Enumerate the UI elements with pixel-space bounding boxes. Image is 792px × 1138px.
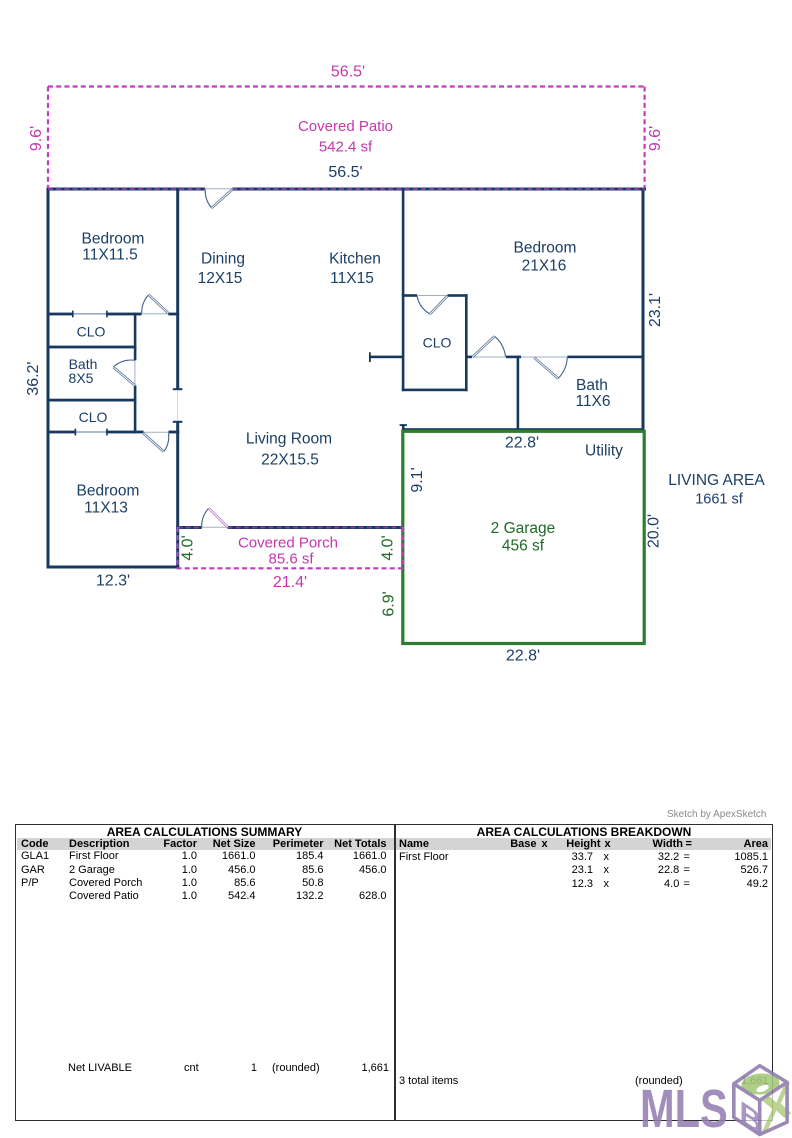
- svg-text:36.2': 36.2': [25, 361, 42, 395]
- svg-text:Bedroom: Bedroom: [77, 483, 140, 500]
- svg-text:9.6': 9.6': [647, 126, 664, 151]
- svg-text:21X16: 21X16: [522, 258, 567, 275]
- svg-text:Bedroom: Bedroom: [514, 240, 577, 257]
- svg-text:Covered Patio: Covered Patio: [298, 118, 393, 135]
- svg-text:85.6 sf: 85.6 sf: [268, 550, 314, 567]
- svg-text:456 sf: 456 sf: [502, 538, 545, 555]
- svg-text:Dining: Dining: [201, 251, 245, 268]
- svg-text:4.0': 4.0': [379, 535, 396, 560]
- svg-text:22X15.5: 22X15.5: [261, 452, 319, 469]
- svg-text:Utility: Utility: [585, 443, 623, 460]
- svg-text:CLO: CLO: [79, 409, 108, 425]
- svg-text:9.1': 9.1': [409, 467, 426, 492]
- svg-text:6.9': 6.9': [381, 591, 398, 616]
- svg-text:56.5': 56.5': [328, 164, 362, 181]
- svg-text:Living Room: Living Room: [246, 431, 332, 448]
- svg-text:9.6': 9.6': [28, 126, 45, 151]
- svg-text:22.8': 22.8': [506, 647, 540, 664]
- svg-text:11X11.5: 11X11.5: [82, 247, 137, 264]
- svg-text:1661 sf: 1661 sf: [695, 492, 744, 508]
- svg-text:12.3': 12.3': [96, 572, 130, 589]
- svg-text:LIVING AREA: LIVING AREA: [668, 472, 765, 489]
- svg-text:542.4 sf: 542.4 sf: [319, 138, 373, 155]
- svg-text:4.0': 4.0': [179, 535, 196, 560]
- svg-text:11X6: 11X6: [575, 393, 610, 410]
- svg-text:22.8': 22.8': [505, 434, 539, 451]
- svg-text:23.1': 23.1': [647, 293, 664, 327]
- svg-text:11X15: 11X15: [330, 270, 374, 287]
- svg-text:56.5': 56.5': [331, 63, 365, 80]
- svg-text:11X13: 11X13: [84, 500, 128, 517]
- svg-text:CLO: CLO: [77, 324, 106, 340]
- svg-text:8X5: 8X5: [69, 370, 94, 386]
- svg-text:2 Garage: 2 Garage: [491, 520, 556, 537]
- svg-text:Covered Porch: Covered Porch: [238, 534, 338, 551]
- svg-text:Bedroom: Bedroom: [82, 231, 145, 248]
- svg-text:CLO: CLO: [423, 335, 452, 351]
- svg-text:20.0': 20.0': [645, 514, 662, 548]
- svg-text:12X15: 12X15: [198, 270, 243, 287]
- svg-text:21.4': 21.4': [273, 574, 307, 591]
- svg-text:Kitchen: Kitchen: [329, 251, 381, 268]
- svg-text:Bath: Bath: [576, 377, 608, 394]
